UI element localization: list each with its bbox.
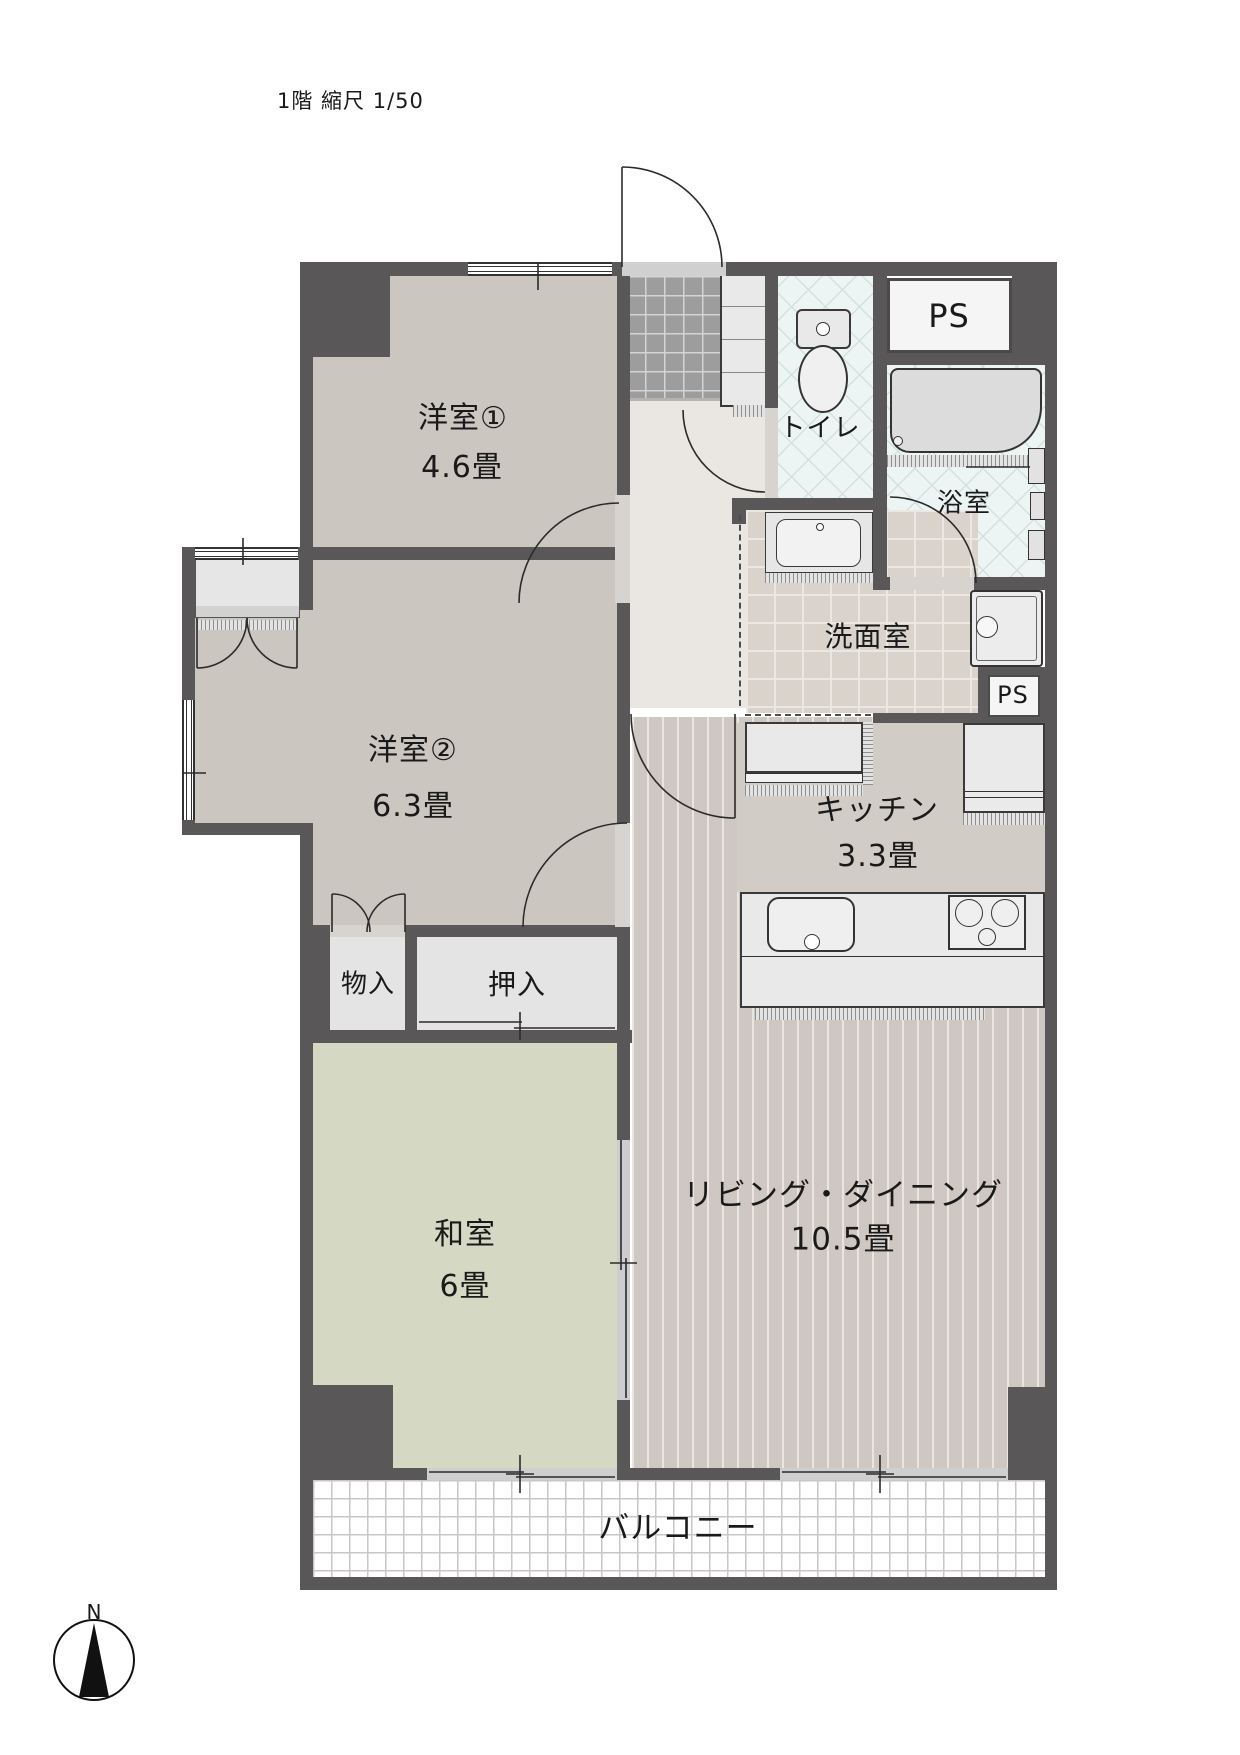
label-storage: 物入 (341, 964, 395, 1001)
western2-closet-box (195, 558, 300, 618)
kitchen-upper-cabinet (745, 722, 863, 773)
western2-floor (313, 558, 617, 925)
label-living-name: リビング・ダイニング (683, 1170, 1003, 1215)
living-balcony-window (780, 1468, 1008, 1480)
shoe-cabinet (720, 273, 770, 407)
entrance-door-arc (622, 167, 722, 267)
label-western1-name: 洋室① (418, 393, 508, 437)
western1-top-window (468, 262, 612, 276)
wall-bottom-center (614, 1468, 782, 1480)
stove-burner-right (991, 899, 1019, 927)
label-western2-size: 6.3畳 (372, 781, 454, 825)
storage-opening (330, 925, 405, 937)
refrigerator-hatch (963, 813, 1045, 825)
compass-circle (54, 1620, 134, 1700)
western2-closet-hatch (197, 620, 298, 630)
bathtub-drain (893, 436, 903, 446)
shower-fixture (1028, 448, 1045, 484)
wall-right (1045, 262, 1057, 1590)
label-washroom: 洗面室 (824, 615, 911, 655)
western2-left-window (182, 700, 195, 820)
toilet-tank-button (816, 322, 830, 336)
japanese-living-slider-rail (617, 1140, 630, 1400)
balcony-rail-bottom (300, 1577, 1057, 1590)
japanese-balcony-window (427, 1468, 617, 1480)
plan-title: 1階 縮尺 1/50 (277, 85, 424, 115)
wall-bath-top (887, 353, 1045, 365)
washbasin-hatch (765, 573, 873, 583)
compass-north-label: N (87, 1600, 102, 1624)
counter-living-hatch (755, 1008, 985, 1020)
kitchen-cabinet-hatch-right (863, 722, 873, 785)
label-japanese-name: 和室 (434, 1209, 496, 1253)
label-western1-size: 4.6畳 (421, 442, 503, 486)
balcony-rail-left (300, 1480, 313, 1590)
wall-toilet-bath (873, 276, 887, 590)
refrigerator-lines (965, 791, 1043, 798)
kitchen-cabinet-counter (745, 773, 863, 783)
floor-plan: 1階 縮尺 1/50 洋室① 4.6畳 洋室② 6.3畳 和室 6畳 リビング・… (0, 0, 1240, 1755)
wall-storage-bottom (313, 1030, 632, 1043)
wall-bottom-right (1006, 1468, 1057, 1480)
genkan-step-line (626, 398, 720, 401)
refrigerator-space (963, 723, 1045, 813)
wall-bottom-left (300, 1468, 430, 1480)
label-closet: 押入 (488, 963, 546, 1003)
label-balcony: バルコニー (598, 1503, 757, 1548)
bath-door-opening (890, 577, 974, 590)
label-living-size: 10.5畳 (790, 1214, 895, 1259)
wall-storage-divider (405, 937, 417, 1032)
kitchen-counter-edge (742, 956, 1043, 957)
bath-sill-hatch (887, 455, 1045, 467)
wall-washroom-kitchen (873, 713, 978, 723)
kitchen-sink-drain (804, 934, 820, 950)
wall-top-right-chunk (1012, 276, 1045, 353)
bath-shelf (1028, 530, 1045, 560)
toilet-door-opening (765, 408, 778, 498)
laundry-drain (976, 616, 998, 638)
pillar-bottom-left (300, 1385, 393, 1480)
western1-door-opening (615, 495, 630, 603)
label-western2-name: 洋室② (368, 725, 458, 769)
washbasin-tap (816, 523, 824, 531)
washroom-kitchen-sliding-door (745, 714, 871, 716)
hall-washroom-sliding-door (739, 515, 741, 706)
label-kitchen-size: 3.3畳 (837, 831, 919, 875)
label-kitchen-name: キッチン (815, 785, 939, 829)
toilet-bowl (798, 345, 848, 413)
label-bath: 浴室 (937, 483, 991, 520)
wall-left-lower (300, 835, 313, 1480)
wall-extension-bottom (182, 823, 313, 835)
label-toilet: トイレ (779, 408, 860, 445)
western2-door-opening (615, 823, 630, 927)
western2-closet-sill (196, 606, 299, 617)
wall-western1-western2 (313, 547, 630, 560)
stove-burner-left (955, 899, 983, 927)
label-ps-lower: PS (997, 681, 1029, 709)
western2-top-window (195, 547, 298, 560)
bathtub (890, 368, 1042, 453)
wall-closet-stub (300, 547, 313, 610)
entrance-genkan-tiles (626, 276, 720, 398)
stove-burner-small (978, 928, 996, 946)
entrance-door-sill (622, 262, 726, 276)
label-japanese-size: 6畳 (439, 1261, 490, 1305)
wall-toilet-bottom (732, 498, 887, 510)
compass-needle (79, 1623, 109, 1697)
wall-storage-spur (313, 925, 330, 1043)
label-ps-upper: PS (928, 297, 970, 335)
bath-faucet (1030, 492, 1045, 520)
pillar-top-left (300, 262, 390, 357)
